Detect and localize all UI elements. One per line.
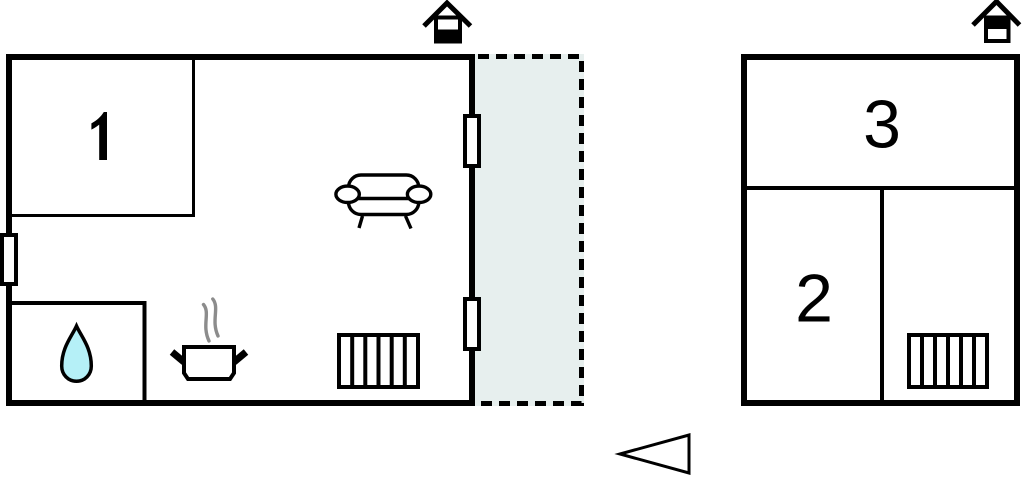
- svg-text:3: 3: [863, 87, 901, 163]
- svg-text:2: 2: [795, 261, 833, 337]
